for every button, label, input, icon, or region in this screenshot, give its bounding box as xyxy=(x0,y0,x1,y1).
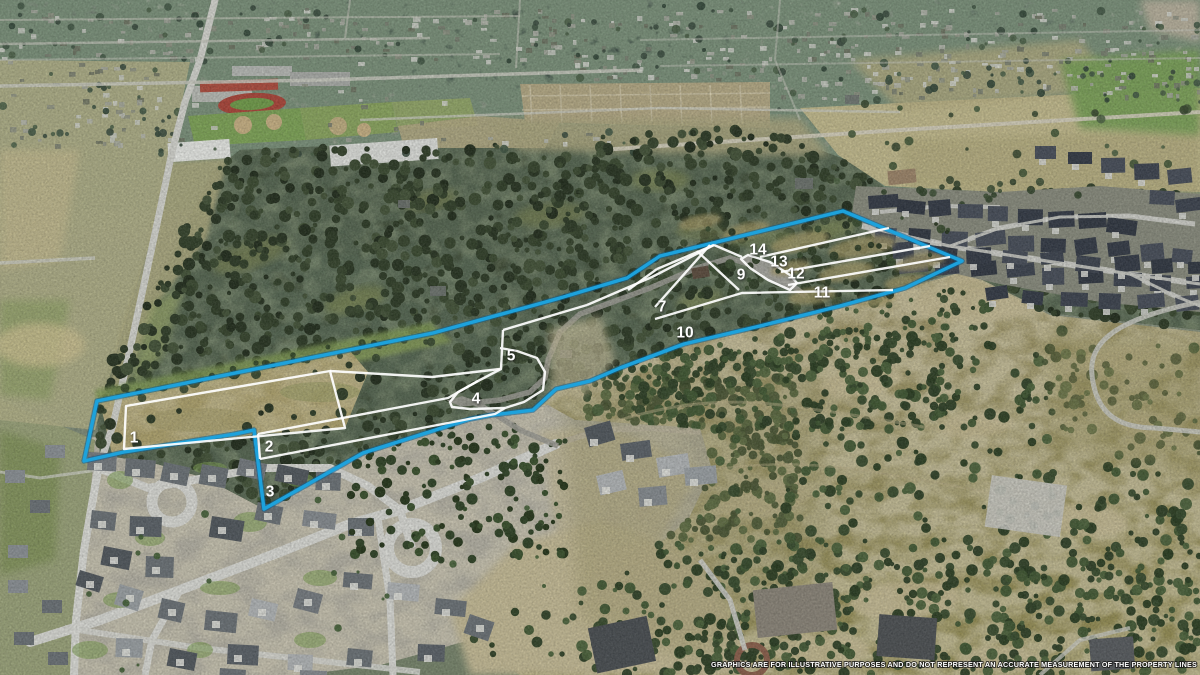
svg-text:14: 14 xyxy=(749,242,767,259)
svg-text:7: 7 xyxy=(658,299,667,316)
svg-text:2: 2 xyxy=(265,439,274,456)
svg-text:13: 13 xyxy=(770,254,788,271)
svg-text:GRAPHICS ARE FOR ILLUSTRATIVE: GRAPHICS ARE FOR ILLUSTRATIVE PURPOSES A… xyxy=(711,660,1197,669)
svg-text:3: 3 xyxy=(266,484,275,501)
svg-text:1: 1 xyxy=(130,430,139,447)
svg-text:5: 5 xyxy=(507,348,516,365)
svg-text:4: 4 xyxy=(472,391,481,408)
svg-text:10: 10 xyxy=(676,325,693,342)
svg-text:12: 12 xyxy=(787,266,804,283)
svg-text:9: 9 xyxy=(737,267,746,284)
svg-text:11: 11 xyxy=(814,285,831,302)
